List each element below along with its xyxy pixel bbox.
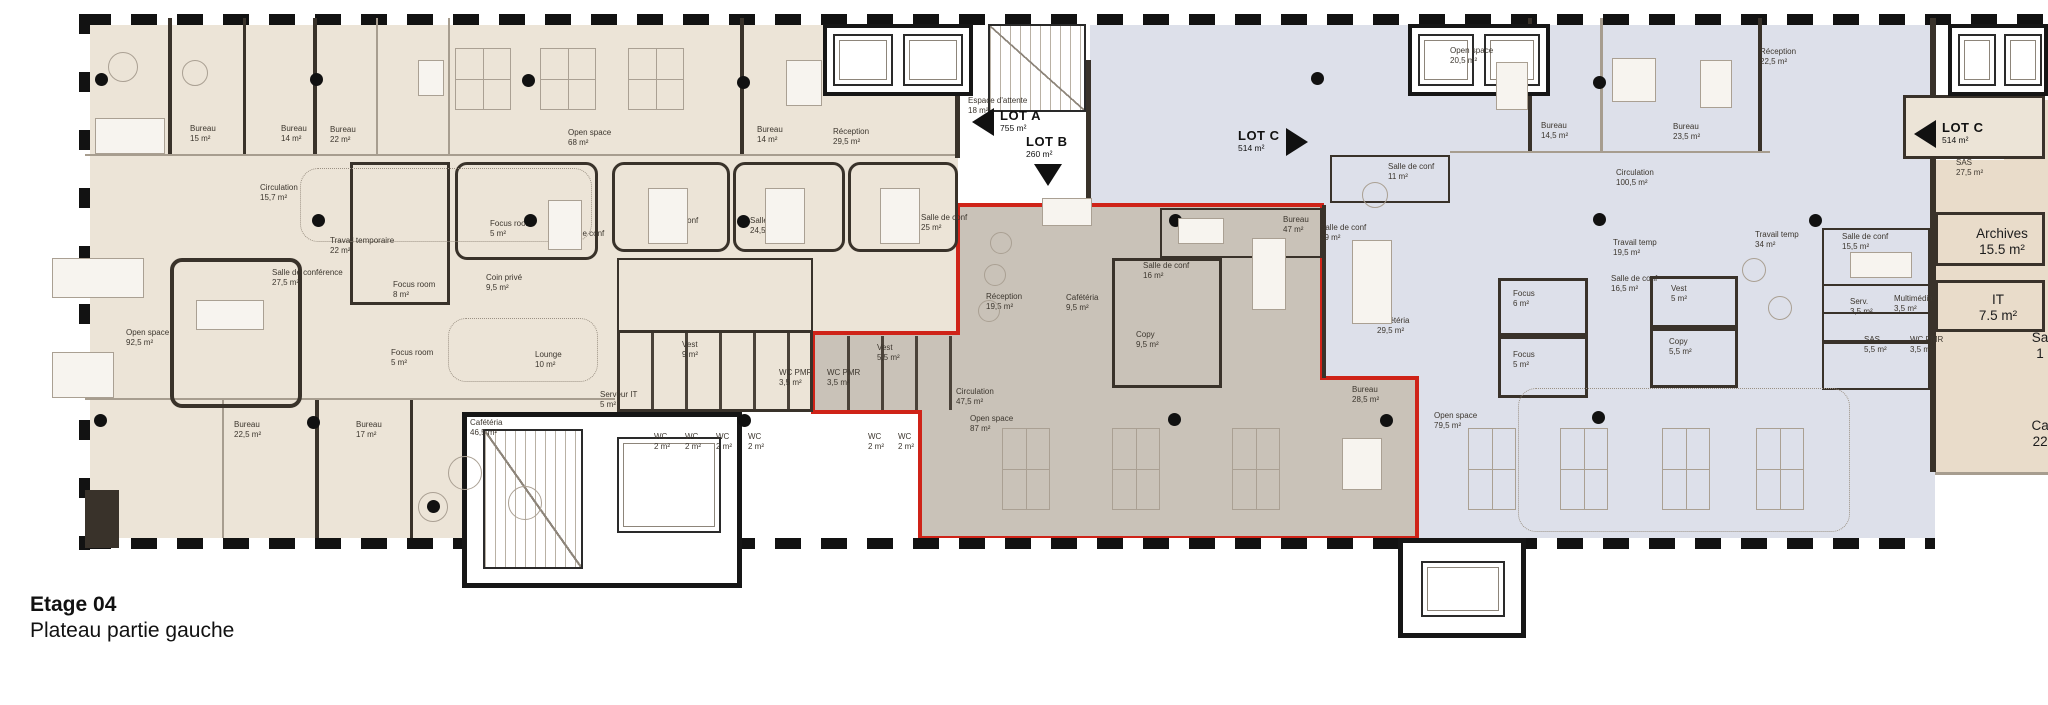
- table-icon: [1252, 238, 1286, 310]
- room-area: 15 m²: [190, 134, 216, 144]
- room-label: Salle de conf16 m²: [1143, 261, 1189, 282]
- room-label: Serv.3,5 m²: [1850, 297, 1873, 318]
- room-label: Bureau14,5 m²: [1541, 121, 1568, 142]
- room-area: 68 m²: [568, 138, 611, 148]
- table-icon: [1352, 240, 1392, 324]
- room-label: Circulation47,5 m²: [956, 387, 994, 408]
- room-name: Open space: [126, 328, 169, 337]
- room-name: Travail temp: [1613, 238, 1657, 247]
- wall: [1758, 18, 1762, 152]
- room-name: Salle de conf: [1143, 261, 1189, 270]
- lot-arrow-left-icon: [1914, 120, 1936, 148]
- elevator-icon: [1958, 34, 1996, 86]
- room-area: 29,5 m²: [1377, 326, 1409, 336]
- room-area: 15.5 m²: [1942, 242, 2048, 258]
- floor-plan: Etage 04 Plateau partie gauche Bureau44,…: [0, 0, 2048, 705]
- room-label: Vest5,5 m²: [877, 343, 900, 364]
- room-label: Open space20,5 m²: [1450, 46, 1493, 67]
- lot-name: LOT A: [1000, 108, 1041, 123]
- title-block: Etage 04 Plateau partie gauche: [30, 592, 234, 645]
- room-label: WC PMR3,5 m²: [1910, 335, 1943, 356]
- room-label-big: Sa1: [1980, 330, 2048, 361]
- room-area: 20,5 m²: [1450, 56, 1493, 66]
- room-label: Bureau28,5 m²: [1352, 385, 1379, 406]
- room-name: WC: [716, 432, 729, 441]
- lounge-dotted: [448, 318, 598, 382]
- room-name: IT: [1992, 292, 2004, 307]
- round-table-icon: [108, 52, 138, 82]
- focus6-outline: [1498, 278, 1588, 336]
- room-area: 92,5 m²: [126, 338, 169, 348]
- room-label: Travail temporaire22 m²: [330, 236, 394, 257]
- room-label: Bureau22,5 m²: [234, 420, 261, 441]
- room-name: Bureau: [1541, 121, 1567, 130]
- room-label: Bureau17 m²: [356, 420, 382, 441]
- table-icon: [1700, 60, 1732, 108]
- room-label: WC2 m²: [685, 432, 701, 453]
- room-name: Travail temp: [1755, 230, 1799, 239]
- room-label-big: Caf22.: [1982, 418, 2048, 449]
- room-area: 3,5 m²: [1894, 304, 1933, 314]
- corner-block: [85, 490, 119, 548]
- lot-name: LOT C: [1238, 128, 1280, 143]
- table-icon: [765, 188, 805, 244]
- wall: [222, 400, 224, 538]
- table-icon: [196, 300, 264, 330]
- room-label: Multimédia3,5 m²: [1894, 294, 1933, 315]
- column-icon: [1592, 411, 1605, 424]
- room-label: SAS5,5 m²: [1864, 335, 1887, 356]
- room-name: Serveur IT: [600, 390, 637, 399]
- room-area: 8 m²: [393, 290, 435, 300]
- lot-arrow-down-icon: [1034, 164, 1062, 186]
- floor-title: Etage 04: [30, 592, 234, 618]
- room-label: Focus room5 m²: [391, 348, 433, 369]
- wall: [168, 18, 172, 155]
- room-area: 9,5 m²: [486, 283, 522, 293]
- room-area: 25 m²: [921, 223, 967, 233]
- wall: [85, 398, 615, 400]
- room-label: Vest9 m²: [682, 340, 698, 361]
- room-name: Cafétéria: [470, 418, 502, 427]
- room-name: Bureau: [1352, 385, 1378, 394]
- room-name: Open space: [970, 414, 1013, 423]
- room-area: 2 m²: [868, 442, 884, 452]
- room-label: Bureau14 m²: [281, 124, 307, 145]
- room-name: Caf: [2031, 418, 2048, 433]
- round-table-icon: [508, 486, 542, 520]
- column-icon: [1593, 213, 1606, 226]
- room-area: 47 m²: [1283, 225, 1309, 235]
- room-area: 19,5 m²: [1613, 248, 1657, 258]
- room-label: Bureau22 m²: [330, 125, 356, 146]
- room-area: 22,5 m²: [1760, 57, 1796, 67]
- lot-area: 755 m²: [1000, 123, 1041, 133]
- room-label: WC PMR3,5 m²: [827, 368, 860, 389]
- room-label: Focus5 m²: [1513, 350, 1535, 371]
- room-label: Cafétéria9,5 m²: [1066, 293, 1098, 314]
- room-name: Réception: [1760, 47, 1796, 56]
- room-name: Bureau: [281, 124, 307, 133]
- room-area: 29,5 m²: [833, 137, 869, 147]
- column-icon: [94, 414, 107, 427]
- room-label: Bureau47 m²: [1283, 215, 1309, 236]
- room-label: Bureau14 m²: [757, 125, 783, 146]
- room-name: Salle de conférence: [272, 268, 343, 277]
- room-area: 9,5 m²: [1136, 340, 1159, 350]
- column-icon: [737, 215, 750, 228]
- room-area: 2 m²: [748, 442, 764, 452]
- room-name: Bureau: [356, 420, 382, 429]
- room-label: Circulation15,7 m²: [260, 183, 298, 204]
- room-area: 23,5 m²: [1673, 132, 1700, 142]
- room-area: 3,5 m²: [1850, 307, 1873, 317]
- room-area: 9 m²: [682, 350, 698, 360]
- room-area: 5,5 m²: [1864, 345, 1887, 355]
- room-name: Salle de conf: [1611, 274, 1657, 283]
- room-label: Copy5,5 m²: [1669, 337, 1692, 358]
- room-area: 14,5 m²: [1541, 131, 1568, 141]
- room-name: Bureau: [330, 125, 356, 134]
- desk-cluster-icon: [1662, 428, 1710, 510]
- column-icon: [1809, 214, 1822, 227]
- wall: [410, 400, 413, 538]
- room-area: 28,5 m²: [1352, 395, 1379, 405]
- elevator-icon: [2004, 34, 2042, 86]
- room-name: Bureau: [1673, 122, 1699, 131]
- room-area: 3,5 m²: [779, 378, 812, 388]
- room-name: Bureau: [1283, 215, 1309, 224]
- round-table-icon: [1768, 296, 1792, 320]
- room-name: Serv.: [1850, 297, 1868, 306]
- room-name: SAS: [1956, 158, 1972, 167]
- lot-label: LOT C514 m²: [1238, 128, 1280, 153]
- room-area: 14 m²: [757, 135, 783, 145]
- room-area: 17 m²: [356, 430, 382, 440]
- column-icon: [738, 414, 751, 427]
- room-name: Coin privé: [486, 273, 522, 282]
- bottom-right-core: [1398, 538, 1526, 638]
- table-icon: [1042, 198, 1092, 226]
- room-label: Salle de conférence27,5 m²: [272, 268, 343, 289]
- room-name: Focus room: [391, 348, 433, 357]
- room-label: Open space68 m²: [568, 128, 611, 149]
- room-name: Open space: [568, 128, 611, 137]
- desk-cluster-icon: [1560, 428, 1608, 510]
- room-name: Bureau: [190, 124, 216, 133]
- room-name: WC PMR: [1910, 335, 1943, 344]
- room-label: SAS27,5 m²: [1956, 158, 1983, 179]
- room-name: WC PMR: [827, 368, 860, 377]
- room-label: Réception29,5 m²: [833, 127, 869, 148]
- room-label: Focus room8 m²: [393, 280, 435, 301]
- room-area: 5 m²: [600, 400, 637, 410]
- room-label: Circulation100,5 m²: [1616, 168, 1654, 189]
- room-area: 3,5 m²: [1910, 345, 1943, 355]
- round-table-icon: [1742, 258, 1766, 282]
- room-area: 5 m²: [1671, 294, 1687, 304]
- table-icon: [880, 188, 920, 244]
- room-name: WC: [685, 432, 698, 441]
- room-label: Open space92,5 m²: [126, 328, 169, 349]
- room-name: Circulation: [260, 183, 298, 192]
- desk-cluster-icon: [628, 48, 684, 110]
- lot-label: LOT A755 m²: [1000, 108, 1041, 133]
- room-name: Open space: [1450, 46, 1493, 55]
- room-label: Salle de conf11 m²: [1388, 162, 1434, 183]
- room-area: 47,5 m²: [956, 397, 994, 407]
- room-name: Bureau: [234, 420, 260, 429]
- room-name: WC: [748, 432, 761, 441]
- table-icon: [648, 188, 688, 244]
- room-name: Lounge: [535, 350, 562, 359]
- table-icon: [1496, 62, 1528, 110]
- lot-area: 260 m²: [1026, 149, 1068, 159]
- round-table-icon: [448, 456, 482, 490]
- room-area: 3,5 m²: [827, 378, 860, 388]
- wall: [376, 18, 378, 155]
- room-area: 5,5 m²: [877, 353, 900, 363]
- room-area: 27,5 m²: [272, 278, 343, 288]
- room-label-big: IT7.5 m²: [1938, 292, 2048, 323]
- room-area: 10 m²: [535, 360, 562, 370]
- lot-name: LOT C: [1942, 120, 1984, 135]
- table-icon: [1850, 252, 1912, 278]
- desk-cluster-icon: [1468, 428, 1516, 510]
- lot-arrow-left-icon: [972, 108, 994, 136]
- room-label: Bureau23,5 m²: [1673, 122, 1700, 143]
- room-label: Focus6 m²: [1513, 289, 1535, 310]
- column-icon: [1380, 414, 1393, 427]
- room-area: 11 m²: [1388, 172, 1434, 182]
- table-icon: [1612, 58, 1656, 102]
- room-name: Espace d'attente: [968, 96, 1027, 105]
- room-area: 5,5 m²: [1669, 347, 1692, 357]
- room-name: Bureau: [757, 125, 783, 134]
- table-icon: [418, 60, 444, 96]
- column-icon: [312, 214, 325, 227]
- room-label: Salle de conf25 m²: [921, 213, 967, 234]
- room-name: Salle de conf: [1320, 223, 1366, 232]
- room-label: WC2 m²: [898, 432, 914, 453]
- room-label: WC2 m²: [868, 432, 884, 453]
- room-area: 5 m²: [1513, 360, 1535, 370]
- lot-label: LOT B260 m²: [1026, 134, 1068, 159]
- lot-arrow-right-icon: [1286, 128, 1308, 156]
- wall: [448, 18, 450, 155]
- room-area: 2 m²: [898, 442, 914, 452]
- desk-cluster-icon: [1232, 428, 1280, 510]
- column-icon: [310, 73, 323, 86]
- room-area: 1: [1980, 346, 2048, 362]
- room-area: 5 m²: [391, 358, 433, 368]
- room-area: 5 m²: [490, 229, 532, 239]
- room-name: WC: [898, 432, 911, 441]
- round-table-icon: [182, 60, 208, 86]
- lot-area: 514 m²: [1238, 143, 1280, 153]
- room-label: Travail temp19,5 m²: [1613, 238, 1657, 259]
- room-area: 2 m²: [654, 442, 670, 452]
- room-name: Travail temporaire: [330, 236, 394, 245]
- room-name: WC PMR: [779, 368, 812, 377]
- copy55-outline: [1650, 328, 1738, 388]
- table-icon: [52, 258, 144, 298]
- room-label-big: Archives15.5 m²: [1942, 226, 2048, 257]
- desk-cluster-icon: [1112, 428, 1160, 510]
- room-name: Archives: [1976, 226, 2028, 241]
- round-table-icon: [990, 232, 1012, 254]
- room-area: 46,5 m²: [470, 428, 502, 438]
- room-name: Cafétéria: [1066, 293, 1098, 302]
- room-name: Vest: [1671, 284, 1687, 293]
- column-icon: [1168, 413, 1181, 426]
- round-table-icon: [978, 300, 1000, 322]
- room-area: 100,5 m²: [1616, 178, 1654, 188]
- round-table-icon: [418, 492, 448, 522]
- room-name: Focus room: [393, 280, 435, 289]
- elevator-core-top: [823, 24, 973, 96]
- room-area: 14 m²: [281, 134, 307, 144]
- room-label: WC PMR3,5 m²: [779, 368, 812, 389]
- room-area: 34 m²: [1755, 240, 1799, 250]
- elevator-core-far-right: [1948, 24, 2048, 96]
- table-icon: [548, 200, 582, 250]
- room-name: Circulation: [1616, 168, 1654, 177]
- floor-subtitle: Plateau partie gauche: [30, 618, 234, 644]
- elevator-icon: [833, 34, 893, 86]
- room-area: 2 m²: [685, 442, 701, 452]
- room-name: Salle de conf: [921, 213, 967, 222]
- room-name: Salle de conf: [1388, 162, 1434, 171]
- room-name: Focus: [1513, 350, 1535, 359]
- desk-cluster-icon: [1756, 428, 1804, 510]
- round-table-icon: [984, 264, 1006, 286]
- wall: [1450, 151, 1770, 153]
- room-label: Salle de conf16,5 m²: [1611, 274, 1657, 295]
- room-name: Open space: [1434, 411, 1477, 420]
- room-area: 22 m²: [330, 246, 394, 256]
- room-label: WC2 m²: [654, 432, 670, 453]
- room-name: Focus: [1513, 289, 1535, 298]
- room-name: Sa: [2032, 330, 2048, 345]
- room-name: Copy: [1669, 337, 1688, 346]
- room-label: Cafétéria46,5 m²: [470, 418, 502, 439]
- room-name: Réception: [833, 127, 869, 136]
- facade-bottom: [85, 538, 1935, 549]
- column-icon: [307, 416, 320, 429]
- room-area: 22 m²: [330, 135, 356, 145]
- room-name: WC: [868, 432, 881, 441]
- wall: [1086, 60, 1091, 205]
- room-name: Circulation: [956, 387, 994, 396]
- room-name: Salle de conf: [1842, 232, 1888, 241]
- column-icon: [737, 76, 750, 89]
- vest-outline: [617, 258, 813, 332]
- room-area: 7.5 m²: [1938, 308, 2048, 324]
- table-icon: [1342, 438, 1382, 490]
- room-area: 15,7 m²: [260, 193, 298, 203]
- room-label: Bureau15 m²: [190, 124, 216, 145]
- column-icon: [1311, 72, 1324, 85]
- table-icon: [52, 352, 114, 398]
- room-area: 22,5 m²: [234, 430, 261, 440]
- room-name: Multimédia: [1894, 294, 1933, 303]
- room-name: Vest: [682, 340, 698, 349]
- table-icon: [95, 118, 165, 154]
- room-label: WC2 m²: [716, 432, 732, 453]
- desk-cluster-icon: [455, 48, 511, 110]
- wall: [313, 18, 317, 155]
- room-area: 16 m²: [1143, 271, 1189, 281]
- room-label: WC2 m²: [748, 432, 764, 453]
- lot-label: LOT C514 m²: [1942, 120, 1984, 145]
- room-label: Serveur IT5 m²: [600, 390, 637, 411]
- room-area: 6 m²: [1513, 299, 1535, 309]
- room-label: Copy9,5 m²: [1136, 330, 1159, 351]
- desk-cluster-icon: [540, 48, 596, 110]
- desk-cluster-icon: [1002, 428, 1050, 510]
- room-name: Vest: [877, 343, 893, 352]
- room-label: Vest5 m²: [1671, 284, 1687, 305]
- room-name: SAS: [1864, 335, 1880, 344]
- wall: [243, 18, 246, 155]
- room-area: 27,5 m²: [1956, 168, 1983, 178]
- room-label: Lounge10 m²: [535, 350, 562, 371]
- column-icon: [524, 214, 537, 227]
- room-name: Copy: [1136, 330, 1155, 339]
- room-label: Coin privé9,5 m²: [486, 273, 522, 294]
- round-table-icon: [1362, 182, 1388, 208]
- table-icon: [1178, 218, 1224, 244]
- room-label: Travail temp34 m²: [1755, 230, 1799, 251]
- vest5-outline: [1650, 276, 1738, 328]
- column-icon: [522, 74, 535, 87]
- room-area: 9,5 m²: [1066, 303, 1098, 313]
- room-area: 16,5 m²: [1611, 284, 1657, 294]
- elevator-icon: [1421, 561, 1505, 617]
- lot-name: LOT B: [1026, 134, 1068, 149]
- table-icon: [786, 60, 822, 106]
- wall: [85, 154, 958, 156]
- column-icon: [95, 73, 108, 86]
- room-label: Réception22,5 m²: [1760, 47, 1796, 68]
- elevator-icon: [903, 34, 963, 86]
- column-icon: [1593, 76, 1606, 89]
- lot-area: 514 m²: [1942, 135, 1984, 145]
- room-area: 2 m²: [716, 442, 732, 452]
- room-name: WC: [654, 432, 667, 441]
- room-label: Salle de conf15,5 m²: [1842, 232, 1888, 253]
- right-edge-bottom-wall: [1935, 472, 2048, 475]
- room-area: 22.: [1982, 434, 2048, 450]
